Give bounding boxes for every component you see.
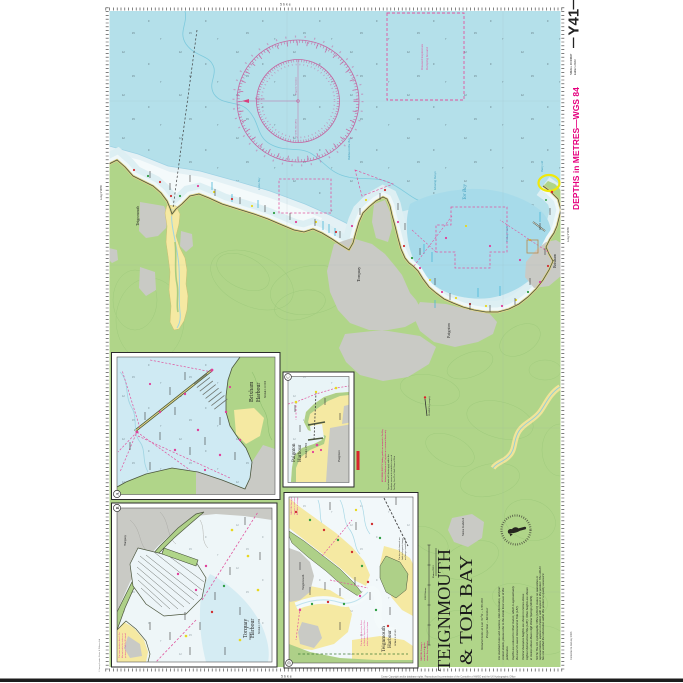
- svg-text:within harbour limits shown: within harbour limits shown: [366, 622, 369, 646]
- svg-text:Harbour: Harbour: [250, 619, 256, 638]
- svg-text:streams in entrance.: streams in entrance.: [293, 496, 296, 515]
- svg-text:Long 3°30'W: Long 3°30'W: [566, 227, 570, 242]
- svg-text:Stoke Gabriel: Stoke Gabriel: [461, 518, 465, 536]
- svg-text:Mooring Buoys: Mooring Buoys: [433, 171, 437, 190]
- svg-text:Harbour: Harbour: [387, 630, 393, 648]
- svg-text:& TOR BAY: & TOR BAY: [456, 555, 476, 665]
- svg-text:© Imray Laurie Norie & Wilson: © Imray Laurie Norie & Wilson Ltd: [98, 638, 101, 672]
- svg-text:maintained at depths: maintained at depths: [423, 642, 426, 661]
- svg-text:B: B: [115, 506, 120, 509]
- svg-text:Teignmouth: Teignmouth: [301, 574, 305, 590]
- svg-text:5 b k e: 5 b k e: [280, 3, 291, 7]
- svg-text:Harbour: Harbour: [256, 383, 262, 402]
- svg-text:Magnetic Variation: Magnetic Variation: [295, 76, 298, 95]
- svg-text:Y41: Y41: [566, 9, 583, 36]
- svg-text:Brixham: Brixham: [552, 253, 557, 268]
- svg-text:Metres 200 0: Metres 200 0: [432, 564, 435, 578]
- svg-text:Dumping Ground: Dumping Ground: [425, 47, 429, 70]
- svg-text:Torbay Yacht: Torbay Yacht: [505, 226, 509, 242]
- svg-text:shown. Keep well clear: shown. Keep well clear: [427, 640, 429, 661]
- svg-text:Berry Hd: Berry Hd: [540, 161, 544, 172]
- svg-text:Natural Scale at Lat. 51°N – 1: Natural Scale at Lat. 51°N – 1/35 000: [480, 598, 484, 651]
- svg-text:Disused Explosives: Disused Explosives: [420, 43, 424, 70]
- svg-text:CAUTION: Fairway is: CAUTION: Fairway is: [420, 642, 423, 661]
- svg-text:TEIGNMOUTH: TEIGNMOUTH: [434, 549, 454, 671]
- svg-text:Projection – Mercator: Projection – Mercator: [485, 607, 489, 639]
- svg-text:Marina berths for visitors on: Marina berths for visitors on: [121, 633, 124, 658]
- svg-text:publication.: publication.: [505, 646, 509, 661]
- svg-text:to Shaldon. Speed limit 10kn: to Shaldon. Speed limit 10kn: [363, 621, 366, 646]
- svg-text:Edition 2023: Edition 2023: [573, 59, 577, 75]
- svg-text:1000 Metres: 1000 Metres: [424, 587, 427, 600]
- svg-text:SCALE 1:12 500: SCALE 1:12 500: [394, 629, 397, 646]
- svg-text:Brixham: Brixham: [249, 381, 255, 402]
- svg-text:CHIMNEY (conspic): CHIMNEY (conspic): [429, 396, 431, 416]
- svg-text:CAUTION Strong tidal: CAUTION Strong tidal: [290, 495, 293, 515]
- svg-text:SCALE 1:10 000: SCALE 1:10 000: [264, 380, 267, 398]
- svg-text:Paignton: Paignton: [446, 322, 451, 338]
- svg-text:D: D: [287, 661, 292, 664]
- svg-text:The ferry runs from the Point: The ferry runs from the Point: [360, 620, 363, 646]
- svg-text:Speed limits of 5 knots apply: Speed limits of 5 knots apply within the: [387, 453, 390, 490]
- svg-text:Tor Bay: Tor Bay: [463, 183, 468, 200]
- svg-text:2°30'W 2020 (8'E): 2°30'W 2020 (8'E): [296, 119, 298, 137]
- svg-text:SCALE 1:7500: SCALE 1:7500: [305, 442, 308, 458]
- svg-text:Torquay: Torquay: [243, 619, 249, 638]
- svg-text:SCALE 1:7700: SCALE 1:7700: [258, 618, 261, 634]
- svg-text:and buoys moved to suit: and buoys moved to suit: [404, 538, 407, 560]
- svg-text:pontoons. Call Ch 80 ahead: pontoons. Call Ch 80 ahead: [124, 633, 127, 658]
- svg-text:Crown Copyright and/or databas: Crown Copyright and/or database rights. …: [381, 676, 516, 679]
- svg-text:Tor Bay. See The Shell Channel: Tor Bay. See The Shell Channel Pilot: [393, 456, 396, 490]
- svg-text:Babbacombe Bay: Babbacombe Bay: [347, 137, 351, 160]
- svg-text:DEPTHS in METRES—WGS 84: DEPTHS in METRES—WGS 84: [571, 87, 581, 210]
- svg-text:Torquay: Torquay: [356, 266, 361, 282]
- svg-text:Magnetic: Magnetic: [255, 98, 266, 101]
- svg-text:Lyme Bay: Lyme Bay: [257, 177, 261, 190]
- svg-text:Corrected to January 2023: Corrected to January 2023: [570, 631, 573, 660]
- svg-text:C: C: [286, 375, 291, 378]
- svg-text:Long 3°38'W: Long 3°38'W: [99, 185, 103, 200]
- svg-text:The bar and channels are: The bar and channels are: [399, 536, 401, 560]
- svg-text:Torquay: Torquay: [123, 534, 127, 546]
- svg-text:the level of Lowest Astronomic: the level of Lowest Astronomical Tide (L…: [515, 605, 519, 660]
- svg-text:MOORING BUOYS Visiting yachts: MOORING BUOYS Visiting yachts are moored…: [381, 428, 384, 482]
- svg-text:The inner harbour dries 1.0m: The inner harbour dries 1.0m: [119, 632, 121, 658]
- svg-text:in metres above Mean High Wate: in metres above Mean High Water Springs …: [529, 595, 533, 660]
- svg-text:between Brixham and Paignton o: between Brixham and Paignton on a season…: [384, 429, 387, 482]
- svg-text:Teignmouth: Teignmouth: [135, 205, 140, 226]
- svg-text:Paignton: Paignton: [337, 450, 341, 462]
- svg-text:liable to frequent change: liable to frequent change: [401, 537, 404, 560]
- svg-text:has not verified the informati: has not verified the information within …: [541, 573, 545, 660]
- svg-text:harbour areas and controlled z: harbour areas and controlled zones of: [390, 455, 393, 490]
- svg-text:Harbour: Harbour: [297, 444, 303, 462]
- svg-text:Bar liable to change: Bar liable to change: [296, 496, 299, 515]
- svg-text:5 b k e: 5 b k e: [281, 675, 292, 679]
